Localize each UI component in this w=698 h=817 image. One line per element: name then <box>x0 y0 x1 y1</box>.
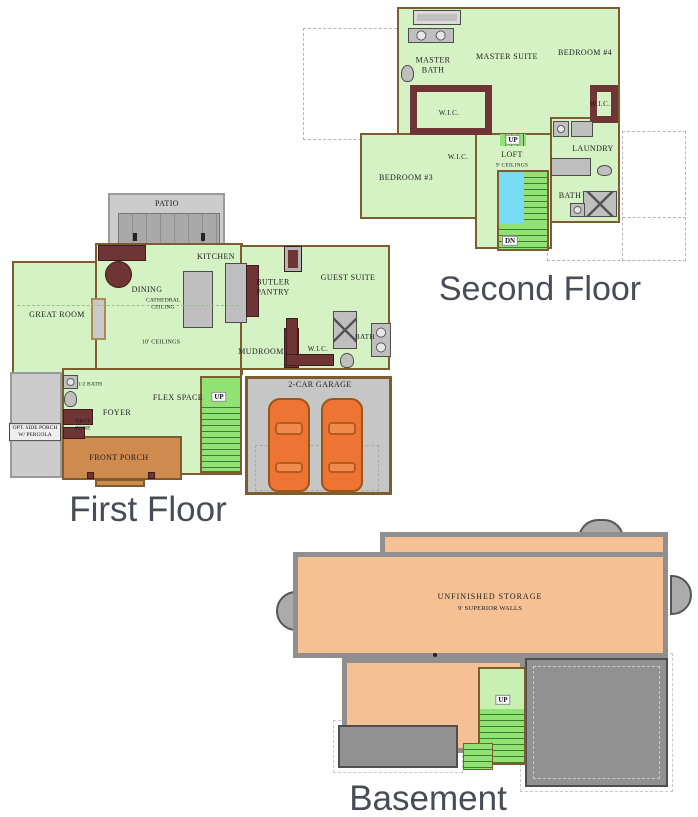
kitchen-counter-icon <box>225 263 247 323</box>
toilet-icon <box>340 353 354 368</box>
deck-post <box>133 233 137 241</box>
basement-title: Basement <box>308 779 548 817</box>
ceiling-break-line <box>17 305 239 306</box>
toilet-icon <box>64 391 77 407</box>
second-floor-title: Second Floor <box>380 270 698 309</box>
shower-icon <box>583 191 617 217</box>
label-loft: LOFT <box>501 150 523 160</box>
label-front-porch: FRONT PORCH <box>89 453 148 463</box>
open-to-below <box>499 172 524 224</box>
label-storage: UNFINISHED STORAGE <box>438 592 543 602</box>
car-rear-window <box>275 462 303 473</box>
fridge-icon <box>284 246 302 272</box>
roof-outline-left <box>303 28 402 140</box>
label-drop-zone: DROP ZONE <box>72 418 94 431</box>
bath-sink-icon <box>570 203 585 217</box>
toilet-icon <box>597 165 612 176</box>
label-superior-walls: 9' SUPERIOR WALLS <box>458 605 522 613</box>
up-badge: UP <box>211 392 226 402</box>
label-master-suite: MASTER SUITE <box>476 52 538 62</box>
label-great-room: GREAT ROOM <box>29 310 85 320</box>
label-wic-bed4: W.I.C. <box>590 100 611 108</box>
laundry-sink-icon <box>553 121 569 137</box>
up-badge: UP <box>495 695 510 705</box>
label-bath: BATH <box>355 333 375 341</box>
label-bath: BATH <box>559 191 582 201</box>
stairs-up <box>200 376 242 473</box>
dryer-icon <box>551 158 591 176</box>
round-table-icon <box>105 261 132 288</box>
label-flex-space: FLEX SPACE <box>153 393 203 403</box>
basement-plan: UP UNFINISHED STORAGE 9' SUPERIOR WALLS … <box>270 515 698 817</box>
label-foyer: FOYER <box>103 408 131 418</box>
plan-marker <box>433 653 437 657</box>
porch-column <box>148 472 155 479</box>
roof-outline-bottom <box>547 217 686 261</box>
closet-shelving-icon <box>286 354 334 366</box>
label-loft-ceiling: 9' CEILINGS <box>496 163 528 170</box>
washer-icon <box>571 121 593 137</box>
stair-run <box>202 402 240 471</box>
stair-run-lower <box>463 743 493 770</box>
window-well <box>670 575 692 615</box>
label-half-bath: 1/2 BATH <box>78 382 102 389</box>
label-wic: W.I.C. <box>308 345 329 353</box>
car-icon <box>268 398 310 492</box>
label-garage: 2-CAR GARAGE <box>288 380 351 390</box>
label-dining: DINING <box>132 285 163 295</box>
shower-icon <box>333 311 357 349</box>
porch-step <box>95 479 145 487</box>
label-patio: PATIO <box>155 199 179 209</box>
label-wic-bed3: W.I.C. <box>448 153 469 161</box>
car-rear-window <box>328 462 356 473</box>
stair-run-down <box>524 172 547 224</box>
label-mudroom: MUDROOM <box>238 347 283 357</box>
label-bedroom-4: BEDROOM #4 <box>558 48 612 58</box>
side-porch-label-box: OPT. SIDE PORCH W/ PERGOLA <box>9 423 61 441</box>
car-windshield <box>328 422 356 435</box>
dn-badge: DN <box>502 236 518 246</box>
car-windshield <box>275 422 303 435</box>
label-bedroom-3: BEDROOM #3 <box>379 173 433 183</box>
bathtub-icon <box>413 10 461 25</box>
fireplace <box>98 245 146 261</box>
label-butler-pantry: BUTLER PANTRY <box>250 277 296 296</box>
label-kitchen: KITCHEN <box>197 252 235 262</box>
porch-slab <box>338 725 458 768</box>
kitchen-island-icon <box>183 271 213 328</box>
label-laundry: LAUNDRY <box>572 144 613 154</box>
first-floor-title: First Floor <box>28 490 268 530</box>
half-bath-sink-icon <box>63 375 78 389</box>
label-wic-master: W.I.C. <box>439 109 460 117</box>
label-guest-suite: GUEST SUITE <box>321 273 376 283</box>
floor-plan-sheet: UP DN MASTER BATH MASTER SUITE BEDROOM #… <box>0 0 698 817</box>
label-master-bath: MASTER BATH <box>410 55 456 74</box>
label-cathedral: CATHEDRAL CEILING <box>146 297 180 310</box>
double-vanity-icon <box>408 28 454 43</box>
porch-column <box>87 472 94 479</box>
label-ceilings: 10' CEILINGS <box>142 339 180 346</box>
garage-slab-inner-line <box>533 666 660 779</box>
up-badge: UP <box>505 135 520 145</box>
first-floor-plan: PATIO OPT. SIDE PORCH W/ PERGOLA FRONT P… <box>5 185 398 533</box>
car-icon <box>321 398 363 492</box>
deck-post <box>201 233 205 241</box>
